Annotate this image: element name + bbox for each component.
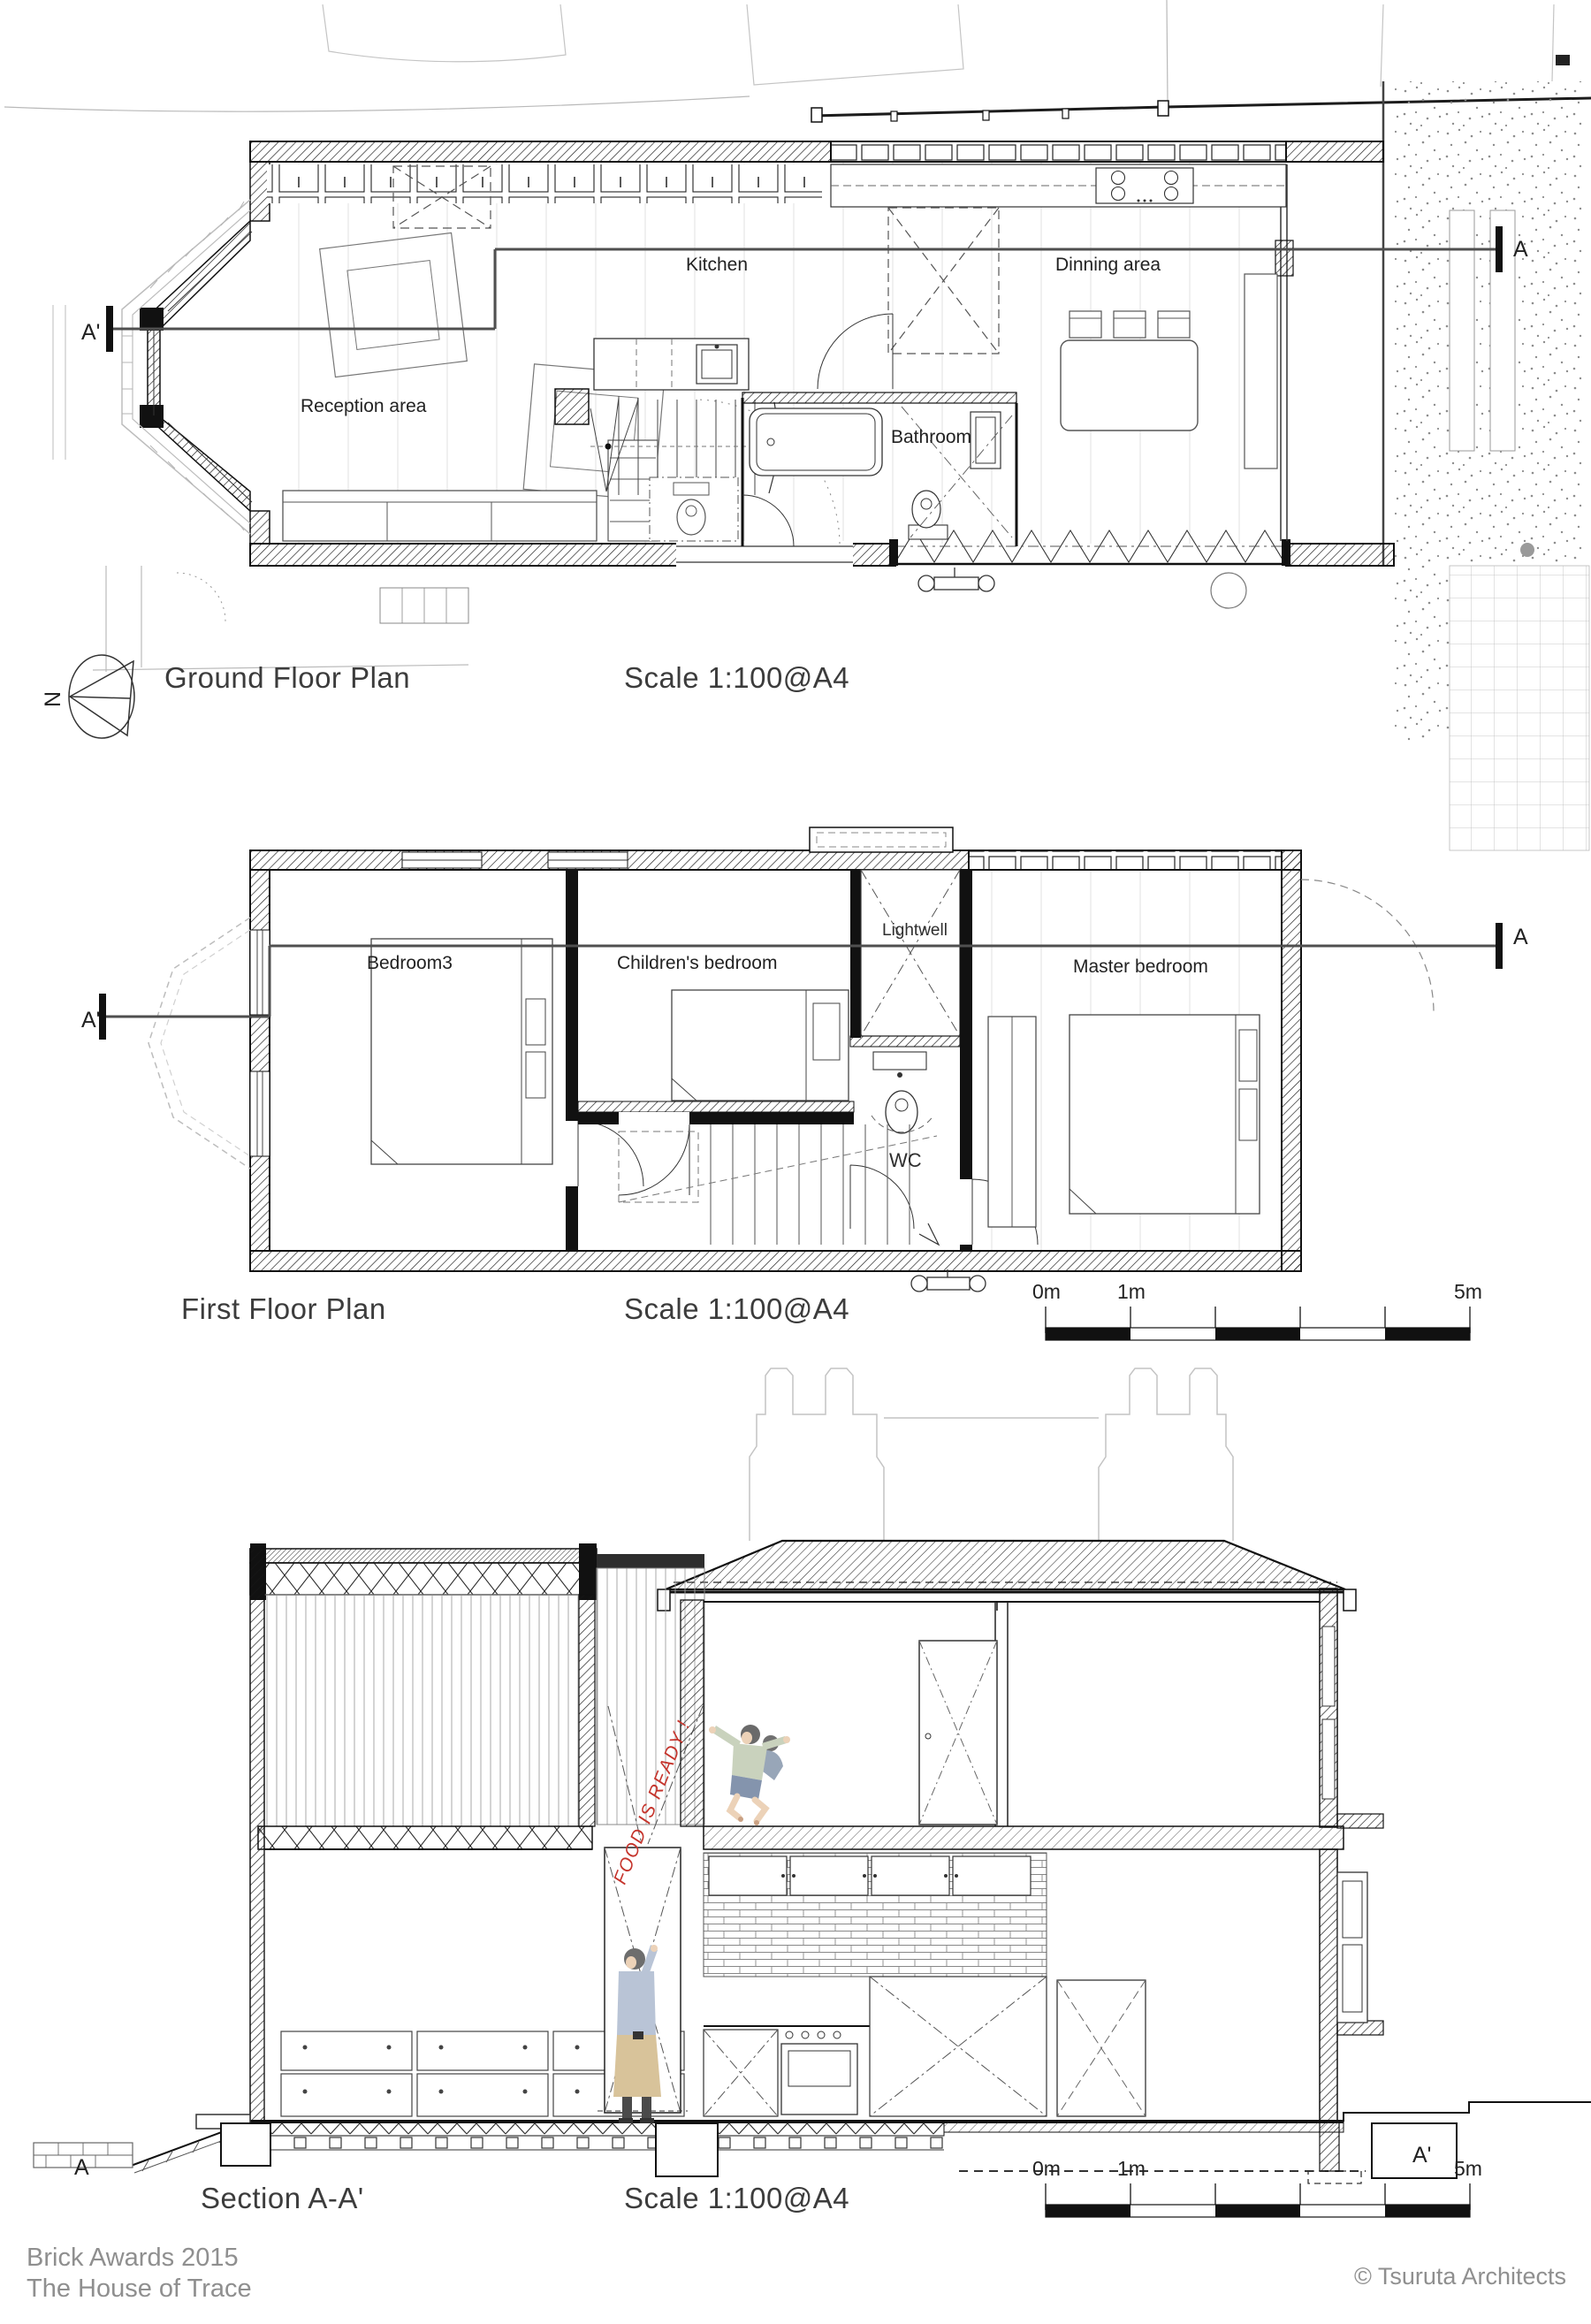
main-roof <box>658 1541 1356 1611</box>
drain-pipes <box>918 568 994 591</box>
ground-wc <box>650 477 738 541</box>
bay-window <box>122 200 252 534</box>
ground-floor-title: Ground Floor Plan <box>164 661 410 695</box>
room-label-dining: Dinning area <box>1055 255 1161 276</box>
section-kitchen <box>704 1853 1146 2116</box>
tree-symbol <box>1211 573 1246 608</box>
footer-project: The House of Trace <box>27 2274 252 2304</box>
drawing-sheet: Kitchen Dinning area Reception area Bath… <box>0 0 1591 2324</box>
section-marker-ff-left: A' <box>81 1008 100 1033</box>
lightwell-shaft <box>850 870 960 1047</box>
drain-pipes-ff <box>911 1269 986 1292</box>
scale-bar-section <box>1046 2183 1470 2217</box>
scalebar2-1m: 1m <box>1117 2157 1146 2181</box>
wall-shelving <box>267 164 822 203</box>
room-label-bedroom3: Bedroom3 <box>367 953 453 974</box>
kitchen-counter <box>831 164 1286 207</box>
section-drawing <box>34 1368 1591 2217</box>
room-label-kitchen: Kitchen <box>686 255 748 276</box>
stairs-first-floor <box>619 1124 939 1245</box>
first-floor-scale: Scale 1:100@A4 <box>624 1292 849 1326</box>
childrens-bed <box>672 990 849 1101</box>
traced-bay-outline <box>148 918 250 1169</box>
garden-paving <box>1395 81 1589 850</box>
adult-figure <box>613 1945 661 2123</box>
footer-credit: © Tsuruta Architects <box>1354 2263 1566 2290</box>
scalebar1-0m: 0m <box>1032 1280 1061 1304</box>
section-marker-gf-left: A' <box>81 320 100 346</box>
master-bed <box>988 1015 1260 1227</box>
room-label-bathroom: Bathroom <box>891 427 971 448</box>
section-marker-gf-right: A <box>1513 237 1528 263</box>
ground-floor-plan <box>69 141 1503 738</box>
ground-floor-scale: Scale 1:100@A4 <box>624 661 849 695</box>
section-marker-sec-right: A' <box>1412 2143 1431 2168</box>
scalebar2-0m: 0m <box>1032 2157 1061 2181</box>
room-label-wc: WC <box>889 1149 922 1172</box>
scale-bar-first-floor <box>1046 1307 1470 1340</box>
scalebar1-1m: 1m <box>1117 1280 1146 1304</box>
room-label-reception: Reception area <box>301 396 426 417</box>
scalebar1-5m: 5m <box>1454 1280 1482 1304</box>
kitchen-island <box>594 339 749 390</box>
scalebar2-5m: 5m <box>1454 2157 1482 2181</box>
wc-fixtures <box>850 1052 933 1229</box>
room-label-lightwell: Lightwell <box>882 921 948 941</box>
north-label: N <box>41 691 66 707</box>
chimney-outline <box>750 1368 1233 1541</box>
section-marker-sec-left: A <box>74 2155 89 2181</box>
north-arrow-icon <box>69 655 134 738</box>
section-marker-ff-right: A <box>1513 925 1528 950</box>
first-floor-title: First Floor Plan <box>181 1292 386 1326</box>
section-scale: Scale 1:100@A4 <box>624 2182 849 2215</box>
architectural-drawing <box>0 0 1591 2324</box>
room-label-master-bedroom: Master bedroom <box>1073 956 1208 978</box>
room-label-childrens-bedroom: Children's bedroom <box>617 953 777 974</box>
section-title: Section A-A' <box>201 2182 364 2215</box>
first-floor-plan <box>99 827 1503 1340</box>
footer-award: Brick Awards 2015 <box>27 2244 239 2273</box>
child-figures <box>709 1725 790 1825</box>
